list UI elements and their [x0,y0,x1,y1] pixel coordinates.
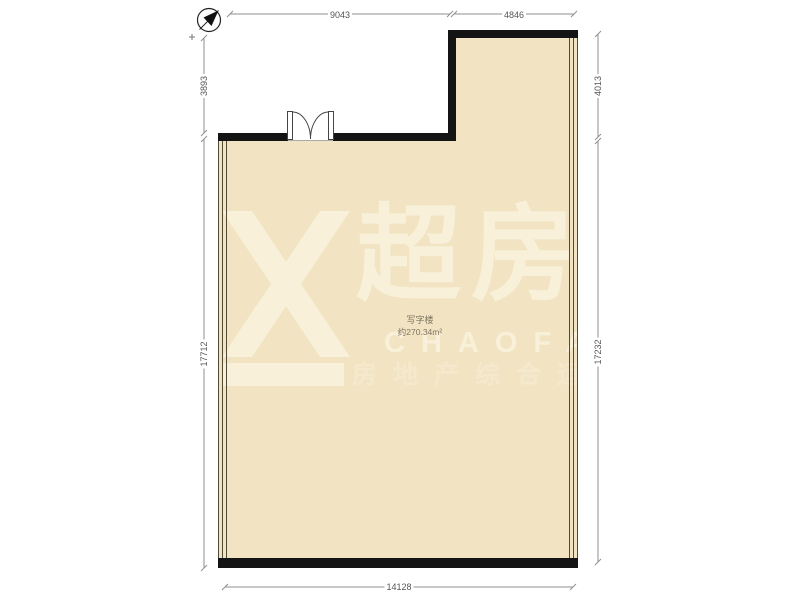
room-area: 约270.34m² [379,327,461,338]
room-label: 写字楼 约270.34m² [379,315,461,338]
plan-linework [0,0,800,600]
floorplan-canvas: 超房 CHAOFANG 房地产综合运营 [0,0,800,600]
dimension-lines [201,11,601,590]
dim-left-lower: 17712 [199,339,209,368]
north-arrow-icon [189,9,221,41]
left-window-icon [219,141,227,558]
dim-top-right: 4846 [502,10,526,20]
dim-right-lower: 17232 [593,337,603,366]
dim-right-upper: 4013 [593,74,603,98]
double-door-icon [288,112,334,142]
dim-top-left: 9043 [328,10,352,20]
dim-left-upper: 3893 [199,74,209,98]
right-window-icon [570,38,578,558]
room-name: 写字楼 [379,315,461,327]
dim-bottom: 14128 [384,582,413,592]
